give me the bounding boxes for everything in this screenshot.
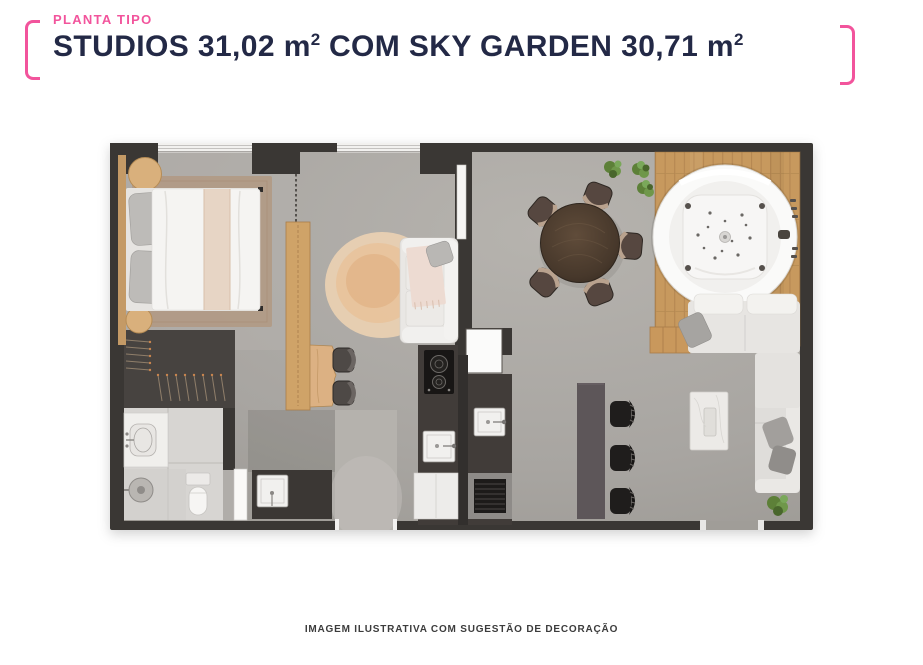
wood-shelf-divider [286,222,310,410]
nightstand [129,158,162,191]
desk [310,345,336,407]
kitchen-sink [423,431,456,462]
bathroom [124,408,247,520]
laundry-counter [252,470,332,519]
disclaimer-caption: IMAGEM ILUSTRATIVA COM SUGESTÃO DE DECOR… [0,624,923,635]
page-title: STUDIOS 31,02 m2 COM SKY GARDEN 30,71 m2 [53,31,743,63]
dining-table [541,204,620,283]
hall-floor [248,410,335,472]
loveseat [400,238,458,343]
desk-chair [333,381,356,405]
vanity-sink [124,413,168,467]
eyebrow-label: PLANTA TIPO [53,12,743,27]
double-bed [126,187,263,311]
window-icon [337,143,420,153]
headboard [118,155,126,345]
service-door [700,520,764,530]
wardrobe [124,330,235,408]
sectional-sofa [755,353,800,493]
title-sup: 2 [311,30,320,49]
title-sup: 2 [734,30,743,49]
window-icon [158,143,252,153]
desk-chair [333,348,356,372]
toilet [186,473,210,515]
floor-plan-svg [110,143,813,530]
bathroom-door [234,469,247,520]
sliding-door [457,165,466,239]
page: PLANTA TIPO STUDIOS 31,02 m2 COM SKY GAR… [0,0,923,665]
cooktop [424,350,454,394]
kitchen-sink [474,408,506,436]
header: PLANTA TIPO STUDIOS 31,02 m2 COM SKY GAR… [40,12,743,63]
door-panel [466,329,502,373]
floor-plan-image [110,143,813,530]
oven [468,473,512,519]
entry [330,410,402,530]
title-part: STUDIOS 31,02 m [53,30,311,63]
title-bracket-right-icon [840,25,855,85]
bar-counter [577,383,605,519]
jacuzzi [651,163,799,311]
title-bracket-left-icon [25,20,40,80]
coffee-table [690,392,728,450]
jacuzzi-handle [778,230,790,239]
title-part: COM SKY GARDEN 30,71 m [320,30,734,63]
